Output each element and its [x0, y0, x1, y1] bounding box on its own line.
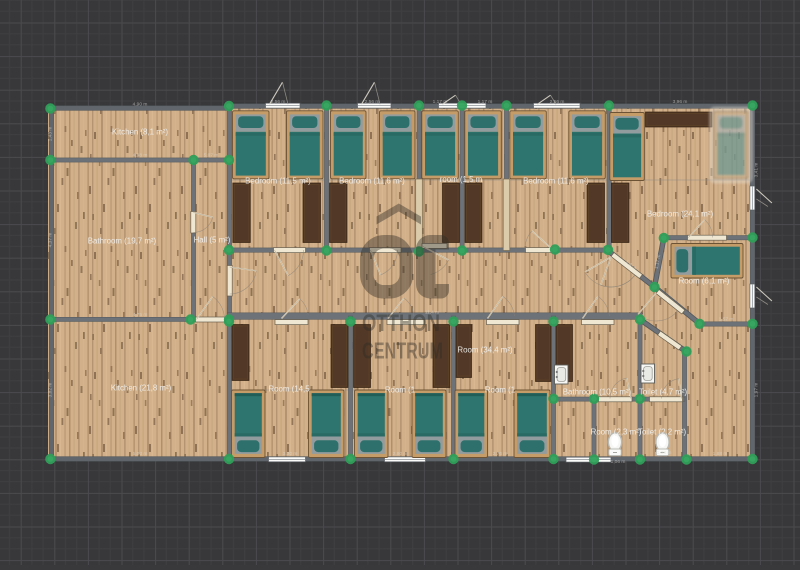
svg-text:2,76 m: 2,76 m [493, 451, 508, 457]
svg-text:3,41 m: 3,41 m [754, 163, 760, 178]
svg-text:CENTRUM: CENTRUM [362, 338, 443, 364]
svg-text:Room (1: Room (1 [485, 386, 515, 395]
svg-text:2,56 m: 2,56 m [271, 99, 286, 105]
svg-text:Bedroom (11,6 m²): Bedroom (11,6 m²) [339, 177, 405, 186]
svg-text:Hall (5 m²): Hall (5 m²) [194, 236, 231, 245]
svg-text:Room (6,1 m²): Room (6,1 m²) [679, 277, 730, 286]
svg-text:Room (14,5: Room (14,5 [268, 385, 310, 394]
svg-text:Toilet (2,2 m²): Toilet (2,2 m²) [638, 428, 687, 437]
svg-text:Bedroom (11,6 m²): Bedroom (11,6 m²) [523, 177, 589, 186]
svg-text:3,30 m: 3,30 m [283, 451, 298, 457]
svg-text:3,82 m: 3,82 m [48, 383, 54, 398]
svg-text:2,56 m: 2,56 m [550, 99, 565, 105]
svg-text:2,56 m: 2,56 m [365, 99, 380, 105]
svg-text:1,38 m: 1,38 m [657, 450, 672, 456]
svg-text:Kitchen (21,8 m²): Kitchen (21,8 m²) [111, 384, 172, 393]
svg-text:1,43 m: 1,43 m [48, 127, 54, 142]
svg-text:Bedroom (11,5 m²): Bedroom (11,5 m²) [245, 177, 311, 186]
svg-text:4,37 m: 4,37 m [48, 233, 54, 248]
svg-text:1,06 m: 1,06 m [611, 459, 626, 465]
svg-text:room (1,5 m: room (1,5 m [440, 175, 483, 184]
svg-text:1,88 m: 1,88 m [713, 451, 728, 457]
svg-text:11,4 m: 11,4 m [425, 309, 439, 315]
svg-text:Toilet (4,7 m²): Toilet (4,7 m²) [639, 388, 688, 397]
svg-text:4,90 m: 4,90 m [133, 101, 148, 107]
svg-text:Bathroom (19,7 m²): Bathroom (19,7 m²) [88, 237, 157, 246]
svg-text:5,03 m: 5,03 m [133, 451, 148, 457]
svg-text:Room (1: Room (1 [385, 386, 415, 395]
svg-text:4,98 m: 4,98 m [133, 152, 148, 158]
svg-text:3,96 m: 3,96 m [673, 99, 688, 105]
svg-text:2,80 m: 2,80 m [393, 451, 408, 457]
svg-text:1,57 m: 1,57 m [719, 316, 734, 322]
svg-text:1,17 m: 1,17 m [433, 99, 448, 105]
svg-text:Room (34,4 m²): Room (34,4 m²) [457, 346, 513, 355]
svg-text:1,97 m: 1,97 m [754, 383, 760, 398]
svg-text:4,75 m: 4,75 m [133, 312, 148, 318]
svg-text:Kitchen (8,1 m²): Kitchen (8,1 m²) [112, 128, 169, 137]
svg-text:Bedroom (24,1 m²): Bedroom (24,1 m²) [647, 210, 714, 219]
svg-text:Bathroom (10,5 m²): Bathroom (10,5 m²) [563, 388, 632, 397]
svg-text:5,07 m: 5,07 m [204, 152, 219, 158]
svg-text:Room (2,3 m²): Room (2,3 m²) [591, 428, 642, 437]
svg-text:1,17 m: 1,17 m [478, 99, 493, 105]
